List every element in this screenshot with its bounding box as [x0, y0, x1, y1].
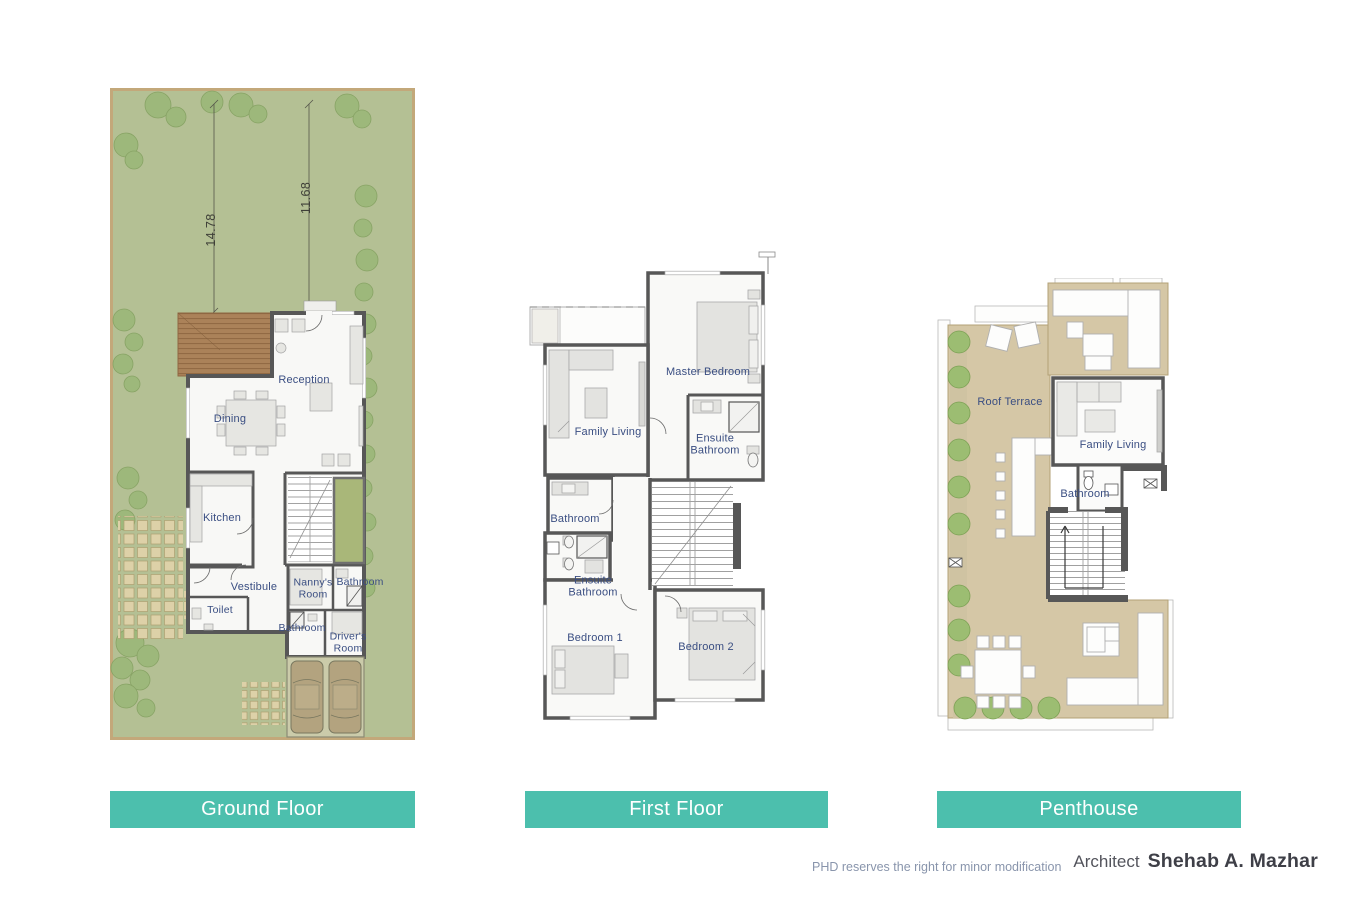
- dining-table: [226, 400, 276, 446]
- ground-floor-plan: 14.78 11.68 Reception Dining Kitchen Ves…: [110, 88, 415, 740]
- outdoor-sofa: [1128, 290, 1160, 368]
- garage: [287, 657, 364, 737]
- first-floor-drawing: [525, 250, 830, 730]
- outdoor-sofa: [1138, 613, 1163, 705]
- driver-bed: [332, 612, 362, 634]
- sofa: [549, 350, 569, 438]
- penthouse-banner: Penthouse: [937, 791, 1241, 828]
- disclaimer-text: PHD reserves the right for minor modific…: [812, 860, 1061, 874]
- ground-floor-banner: Ground Floor: [110, 791, 415, 828]
- master-bed: [697, 302, 757, 372]
- architect-credit: Architect Shehab A. Mazhar: [1073, 850, 1318, 873]
- ground-floor-drawing: [110, 88, 415, 740]
- dining-table: [975, 650, 1021, 694]
- floorplan-sheet: 14.78 11.68 Reception Dining Kitchen Ves…: [0, 0, 1360, 916]
- wooden-deck: [178, 313, 272, 376]
- penthouse-banner-label: Penthouse: [1039, 798, 1138, 821]
- sofa: [1057, 382, 1077, 436]
- first-floor-banner: First Floor: [525, 791, 828, 828]
- roof-mark: [759, 252, 775, 274]
- bathroom: [1078, 465, 1122, 511]
- corridor: [613, 477, 650, 589]
- staircase: [1048, 507, 1128, 602]
- sofa: [569, 350, 613, 370]
- ground-floor-banner-label: Ground Floor: [201, 798, 324, 821]
- first-floor-plan: Family Living Master Bedroom Ensuite Bat…: [525, 250, 830, 730]
- staircase: [288, 476, 332, 562]
- penthouse-plan: Roof Terrace Family Living Bathroom: [935, 278, 1247, 740]
- penthouse-drawing: [935, 278, 1247, 740]
- staircase: [650, 478, 741, 590]
- first-floor-banner-label: First Floor: [629, 798, 723, 821]
- architect-prefix: Architect: [1073, 852, 1139, 872]
- nanny-bed: [290, 569, 322, 605]
- kitchen-counter: [190, 474, 252, 486]
- bar-counter: [1012, 438, 1035, 536]
- car: [291, 661, 323, 733]
- balcony: [530, 307, 645, 345]
- patio-planter: [334, 478, 364, 563]
- car: [329, 661, 361, 733]
- reception-sofa: [350, 326, 363, 384]
- architect-name: Shehab A. Mazhar: [1148, 850, 1318, 873]
